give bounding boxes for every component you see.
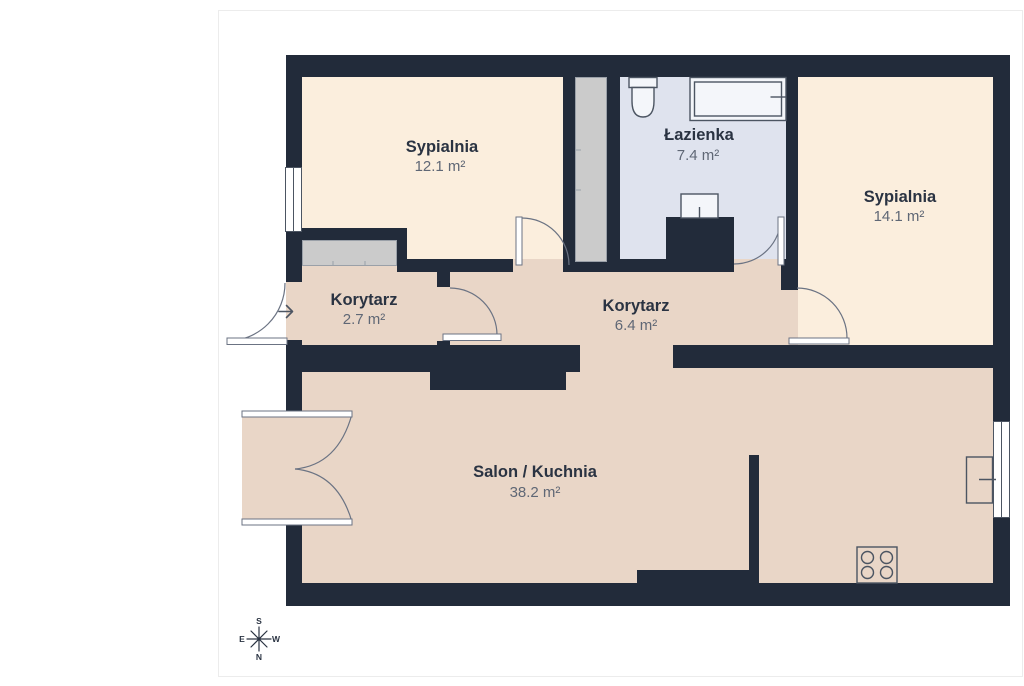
- sink-icon: [681, 194, 718, 218]
- compass-right-label: W: [272, 634, 281, 644]
- balcony-threshold: [242, 413, 302, 523]
- room-area-bedroom-2: 14.1 m²: [874, 208, 925, 225]
- floor-plan-svg: Sypialnia 12.1 m² Łazienka 7.4 m² Sypial…: [0, 0, 1024, 686]
- entrance-door: [227, 283, 287, 345]
- room-area-living-kitchen: 38.2 m²: [510, 484, 561, 501]
- compass-icon: S N E W: [239, 616, 281, 662]
- room-label-bathroom: Łazienka: [664, 126, 735, 144]
- window-bedroom-1: [286, 168, 302, 232]
- room-area-hallway-entry: 2.7 m²: [343, 311, 386, 328]
- bathtub-icon: [690, 78, 786, 121]
- toilet-icon: [629, 78, 657, 118]
- room-area-bathroom: 7.4 m²: [677, 147, 720, 164]
- room-label-bedroom-1: Sypialnia: [406, 138, 479, 156]
- room-area-hallway-main: 6.4 m²: [615, 317, 658, 334]
- room-label-living-kitchen: Salon / Kuchnia: [473, 463, 598, 481]
- wardrobe-strip: [576, 78, 607, 262]
- compass-bottom-label: N: [256, 652, 262, 662]
- floor-plan-canvas: Sypialnia 12.1 m² Łazienka 7.4 m² Sypial…: [0, 0, 1024, 686]
- room-label-hallway-main: Korytarz: [603, 297, 670, 315]
- room-area-bedroom-1: 12.1 m²: [415, 158, 466, 175]
- compass-left-label: E: [239, 634, 245, 644]
- room-label-bedroom-2: Sypialnia: [864, 188, 937, 206]
- wardrobe-hall: [303, 241, 397, 266]
- window-living-room: [994, 422, 1010, 518]
- room-label-hallway-entry: Korytarz: [331, 291, 398, 309]
- compass-top-label: S: [256, 616, 262, 626]
